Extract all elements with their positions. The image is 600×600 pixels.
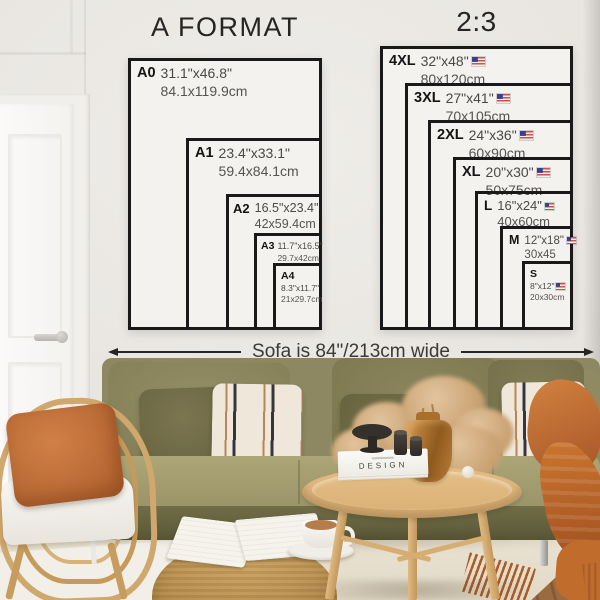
book-title: DESIGN bbox=[359, 460, 408, 471]
size-label: A0 31.1"x46.8" 84.1x119.9cm bbox=[137, 65, 317, 100]
size-code: A2 bbox=[233, 201, 250, 217]
size-inches: 16.5"x23.4" bbox=[255, 201, 319, 216]
us-flag-icon bbox=[520, 131, 533, 140]
wall-molding bbox=[70, 0, 73, 53]
us-flag-icon bbox=[545, 203, 554, 210]
size-code: 2XL bbox=[437, 127, 464, 145]
bowl-foot bbox=[360, 447, 384, 453]
door-panel bbox=[8, 134, 62, 338]
size-code: M bbox=[509, 233, 519, 248]
size-label: A3 11.7"x16.5" 29.7x42cm bbox=[261, 240, 317, 263]
size-code: XL bbox=[462, 164, 481, 182]
size-inches: 11.7"x16.5" bbox=[277, 241, 322, 252]
us-flag-icon bbox=[567, 237, 576, 244]
size-cm: 84.1x119.9cm bbox=[161, 83, 317, 100]
size-cm: 29.7x42cm bbox=[277, 253, 322, 263]
candle-holder-top bbox=[394, 430, 407, 435]
size-inches: 20"x30" bbox=[486, 164, 534, 181]
size-inches: 23.4"x33.1" bbox=[219, 145, 290, 162]
us-flag-icon bbox=[556, 283, 565, 290]
decor-ball bbox=[462, 466, 474, 478]
wall-molding bbox=[0, 52, 86, 55]
size-label: A4 8.3"x11.7" 21x29.7cm bbox=[281, 270, 317, 304]
a-format-title: A FORMAT bbox=[128, 12, 322, 43]
size-inches: 24"x36" bbox=[469, 127, 517, 144]
size-code: A4 bbox=[281, 270, 317, 283]
size-label: A1 23.4"x33.1" 59.4x84.1cm bbox=[195, 145, 317, 180]
sofa-leg bbox=[540, 540, 548, 566]
arrow-left-icon bbox=[108, 348, 118, 356]
candle-holder-top bbox=[410, 436, 422, 441]
size-code: A0 bbox=[137, 65, 156, 83]
size-code: A1 bbox=[195, 145, 214, 163]
size-label: A2 16.5"x23.4" 42x59.4cm bbox=[233, 201, 317, 232]
size-label: M 12"x18" 30x45 bbox=[509, 233, 568, 262]
size-inches: 12"x18" bbox=[524, 234, 564, 248]
candle-holder bbox=[394, 432, 407, 455]
book-cover-mark bbox=[372, 457, 394, 460]
size-box-a4: A4 8.3"x11.7" 21x29.7cm bbox=[273, 263, 322, 330]
poster-a-format: A0 31.1"x46.8" 84.1x119.9cm A1 23.4"x33.… bbox=[128, 58, 322, 330]
us-flag-icon bbox=[472, 57, 485, 66]
size-code: 3XL bbox=[414, 90, 441, 108]
size-cm: 21x29.7cm bbox=[281, 294, 317, 305]
size-code: S bbox=[530, 268, 568, 281]
rust-pillow bbox=[5, 402, 126, 509]
ratio-title: 2:3 bbox=[380, 6, 573, 38]
size-code: 4XL bbox=[389, 53, 416, 71]
arrow-line bbox=[118, 351, 241, 353]
size-cm: 42x59.4cm bbox=[255, 217, 319, 232]
arrow-line bbox=[461, 351, 584, 353]
size-inches: 8.3"x11.7" bbox=[281, 283, 319, 294]
size-code: A3 bbox=[261, 240, 274, 253]
size-inches: 31.1"x46.8" bbox=[161, 65, 232, 82]
size-cm: 59.4x84.1cm bbox=[219, 163, 317, 180]
size-inches: 16"x24" bbox=[497, 198, 542, 214]
arrow-right-icon bbox=[584, 348, 594, 356]
throw-fringe bbox=[582, 560, 600, 600]
door-handle-rosette bbox=[56, 331, 68, 343]
size-label: S 8"x12" 20x30cm bbox=[530, 268, 568, 302]
size-code: L bbox=[484, 198, 492, 214]
poster-ratio-2-3: 4XL 32"x48" 80x120cm 3XL 27"x41" 70x105c… bbox=[380, 46, 573, 330]
coffee-surface bbox=[305, 520, 337, 530]
size-inches: 32"x48" bbox=[421, 53, 469, 70]
rattan-chair bbox=[0, 392, 160, 600]
size-inches: 8"x12" bbox=[530, 281, 554, 292]
size-box-s: S 8"x12" 20x30cm bbox=[522, 261, 573, 330]
us-flag-icon bbox=[497, 94, 510, 103]
seat-seam bbox=[298, 460, 300, 504]
us-flag-icon bbox=[537, 168, 550, 177]
size-chart-scene: A FORMAT 2:3 A0 31.1"x46.8" 84.1x119.9cm… bbox=[0, 0, 600, 600]
size-cm: 20x30cm bbox=[530, 292, 568, 303]
size-inches: 27"x41" bbox=[446, 90, 494, 107]
